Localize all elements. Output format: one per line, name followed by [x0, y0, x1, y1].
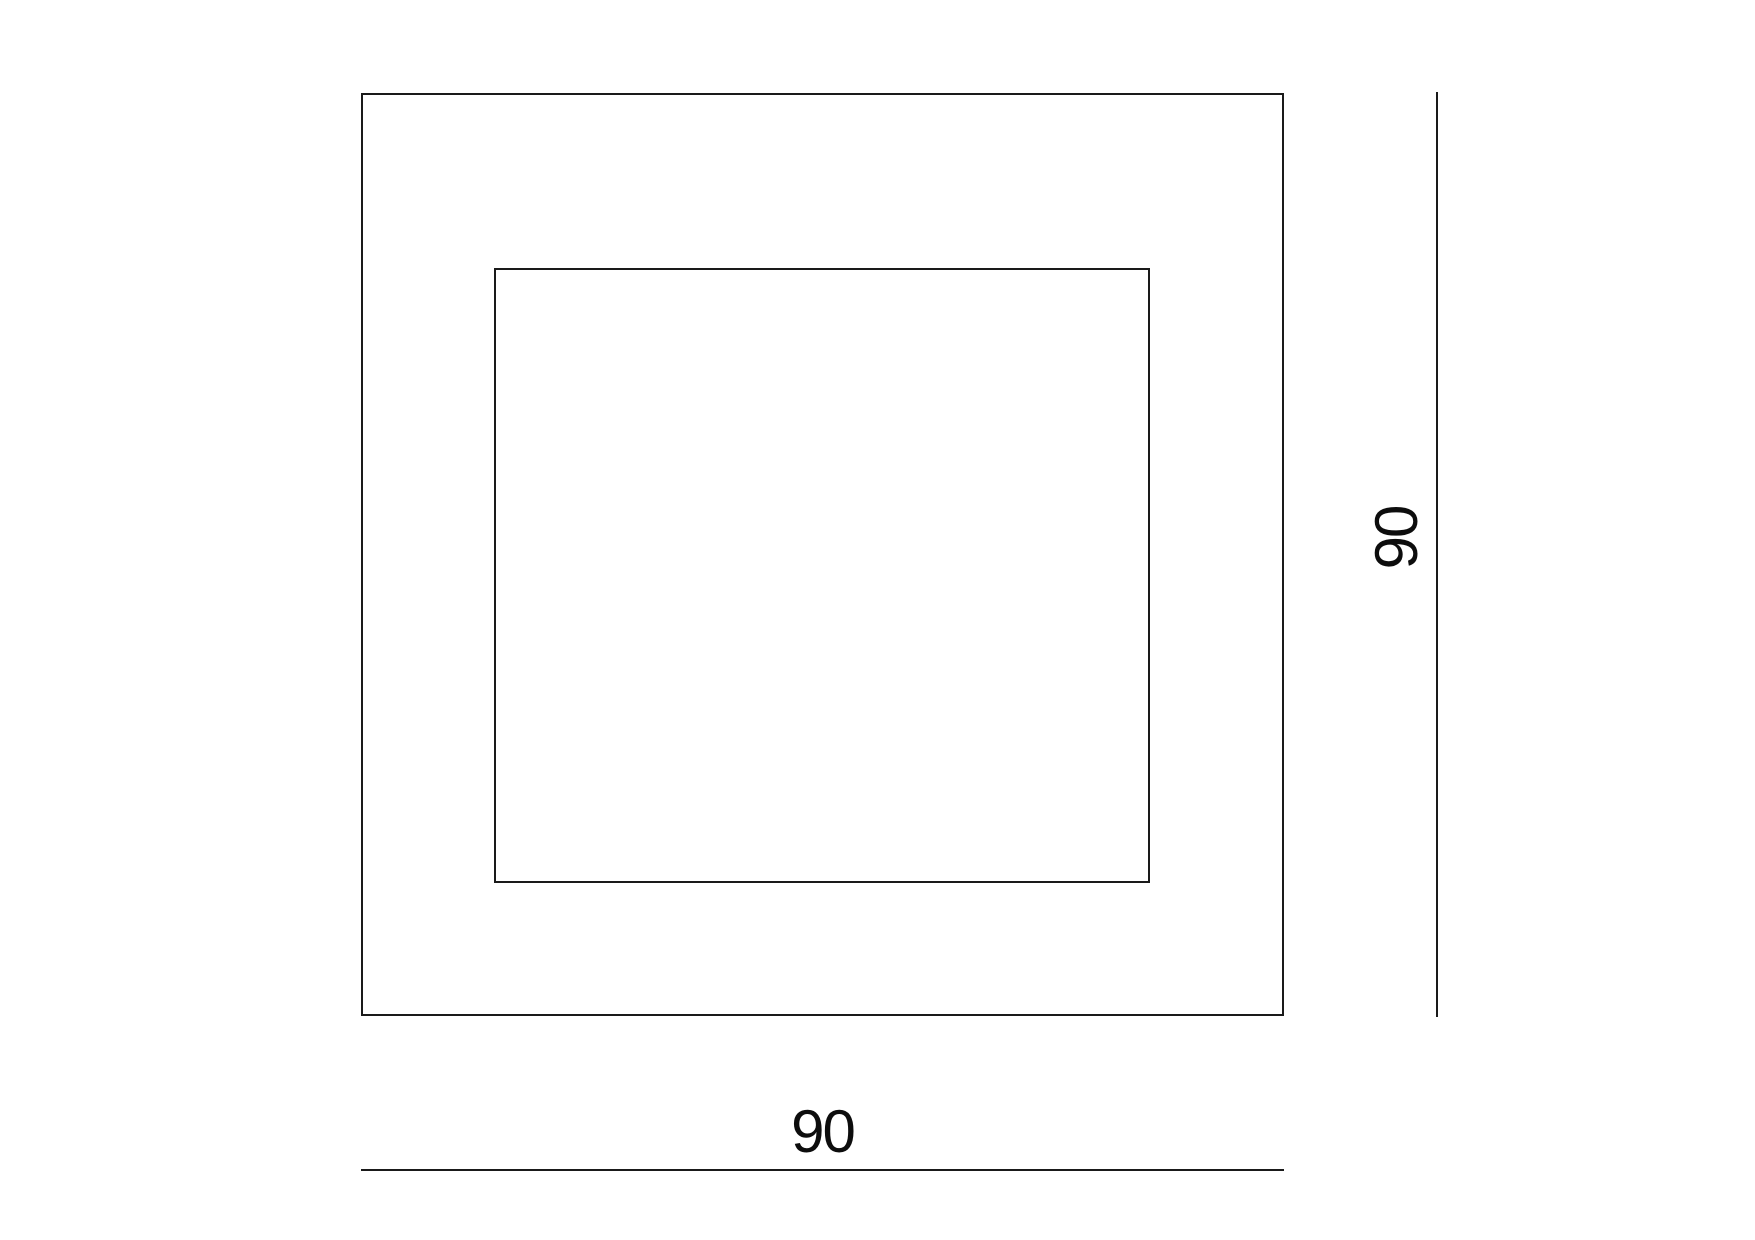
width-dimension-line	[361, 1169, 1284, 1171]
height-dimension-line	[1436, 92, 1438, 1017]
width-dimension-label: 90	[361, 1100, 1284, 1164]
inner-square	[494, 268, 1150, 883]
height-dimension-label: 90	[1367, 507, 1427, 570]
drawing-canvas: 90 90	[0, 0, 1755, 1240]
